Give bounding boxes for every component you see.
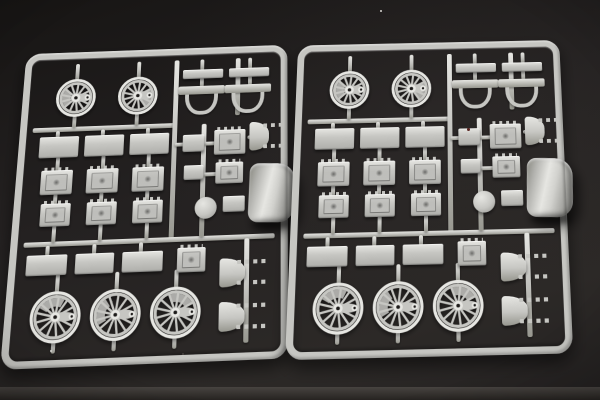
round-cover-part — [194, 197, 217, 220]
studded-runner — [539, 139, 561, 143]
axlebox-plate-part — [214, 129, 246, 155]
runner-bar — [144, 222, 149, 239]
molded-plate-part — [355, 245, 394, 266]
table-edge-strip — [0, 387, 600, 400]
spoked-wheel-large — [25, 288, 85, 348]
axlebox-plate-part — [132, 200, 163, 224]
runner-bar — [377, 216, 381, 233]
spoked-wheel-large — [86, 285, 145, 344]
studded-arc-bracket-part — [501, 295, 550, 326]
molded-plate-part — [84, 134, 125, 156]
spoked-wheel-large — [430, 277, 487, 335]
studded-runner — [538, 118, 560, 122]
runner-bar — [23, 233, 274, 248]
spoked-wheel-small — [389, 67, 434, 110]
axlebox-plate-part — [131, 166, 164, 192]
studded-runner — [263, 123, 285, 128]
axlebox-plate-part — [409, 160, 441, 185]
spoked-wheel-large — [309, 279, 366, 337]
molded-plate-part — [403, 244, 444, 265]
studded-arc-bracket-part — [219, 257, 266, 288]
spoked-wheel-small — [327, 68, 373, 111]
molded-plate-part — [456, 63, 496, 73]
axlebox-plate-part — [411, 193, 441, 217]
axlebox-plate-part — [318, 195, 349, 219]
u-bracket-part — [181, 85, 222, 115]
molded-plate-part — [121, 251, 163, 273]
molded-plate-part — [405, 126, 444, 148]
molded-plate-part — [314, 128, 354, 150]
dust-speck — [50, 350, 52, 352]
molded-plate-part — [223, 195, 245, 212]
studded-runner — [237, 280, 266, 285]
molded-plate-part — [461, 159, 481, 174]
spoked-wheel-large — [370, 278, 426, 336]
molded-plate-part — [182, 134, 204, 152]
runner-bar — [424, 215, 428, 232]
axlebox-plate-part — [177, 247, 206, 273]
molded-plate-part — [306, 246, 347, 267]
molded-plate-part — [502, 62, 543, 72]
dust-speck — [467, 128, 470, 131]
runner-bar — [51, 225, 56, 242]
u-bracket-part — [455, 79, 496, 109]
studded-runner — [519, 274, 548, 279]
axlebox-plate-part — [490, 123, 522, 148]
axlebox-plate-part — [215, 161, 243, 183]
studded-runner — [237, 303, 266, 308]
studded-arc-bracket-part — [525, 116, 561, 145]
round-cover-part — [473, 191, 495, 213]
studded-runner — [520, 318, 550, 323]
studded-runner — [237, 324, 267, 329]
axlebox-plate-part — [86, 201, 117, 225]
curved-shell-part — [248, 163, 296, 222]
runner-bar — [303, 228, 554, 239]
spoked-wheel-large — [146, 283, 204, 342]
axlebox-plate-part — [458, 241, 487, 266]
studded-arc-bracket-part — [500, 252, 548, 282]
axlebox-plate-part — [492, 156, 520, 178]
axlebox-plate-part — [39, 203, 71, 227]
axlebox-plate-part — [365, 194, 395, 218]
molded-plate-part — [360, 127, 400, 149]
runner-bar — [98, 224, 103, 241]
axlebox-plate-part — [85, 168, 118, 194]
sprue-left — [0, 45, 288, 370]
spoked-wheel-small — [52, 76, 99, 120]
sprue-right — [285, 40, 573, 360]
molded-plate-part — [501, 190, 523, 206]
axlebox-plate-part — [363, 161, 395, 186]
u-bracket-part — [227, 83, 268, 113]
dust-speck — [182, 353, 184, 355]
molded-plate-part — [183, 69, 224, 80]
molded-plate-part — [25, 254, 67, 276]
studded-runner — [263, 144, 285, 149]
dust-speck — [380, 10, 382, 12]
spoked-wheel-small — [114, 74, 160, 118]
studded-runner — [520, 297, 550, 302]
studded-runner — [518, 254, 547, 259]
photo-canvas — [0, 0, 600, 400]
u-bracket-part — [501, 78, 543, 108]
molded-plate-part — [184, 165, 204, 180]
curved-shell-part — [527, 158, 573, 217]
studded-runner — [237, 259, 266, 264]
molded-plate-part — [74, 252, 114, 274]
molded-plate-part — [229, 67, 269, 78]
molded-plate-part — [38, 136, 79, 158]
axlebox-plate-part — [317, 162, 350, 187]
studded-arc-bracket-part — [218, 300, 266, 332]
axlebox-plate-part — [40, 170, 74, 196]
studded-arc-bracket-part — [249, 121, 284, 151]
runner-bar — [331, 217, 336, 234]
molded-plate-part — [129, 133, 169, 155]
